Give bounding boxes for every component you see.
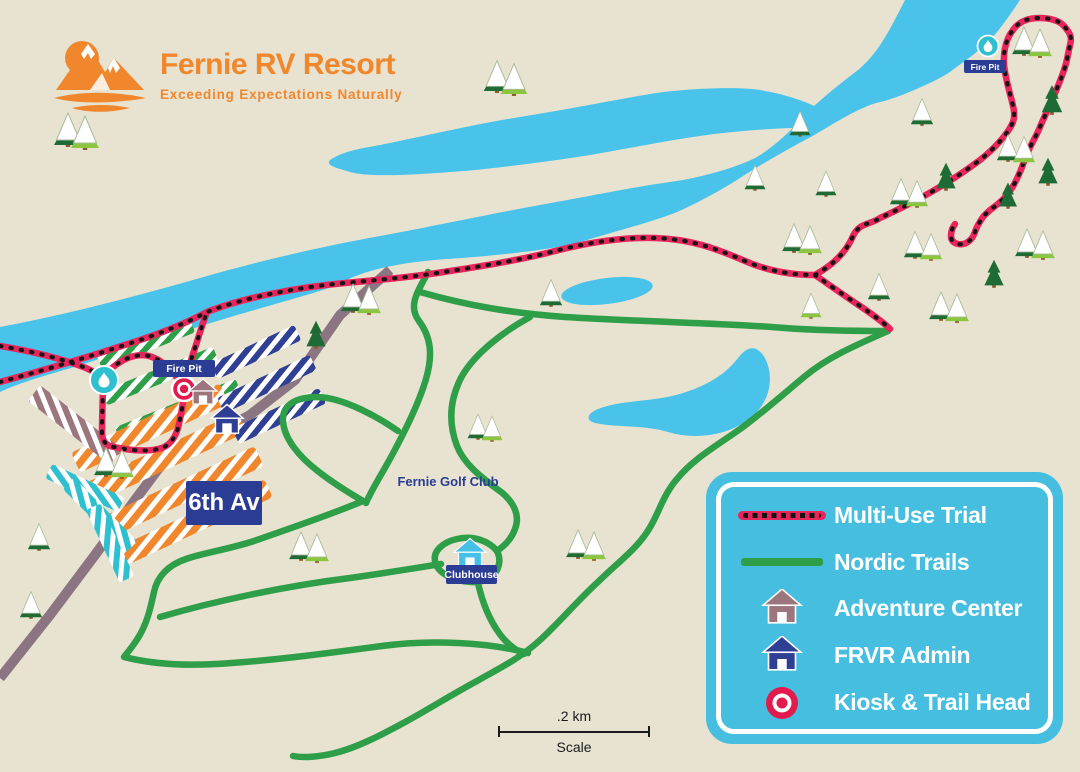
scale-tick-right: [648, 726, 650, 737]
legend-label: Adventure Center: [834, 595, 1022, 622]
tree-icon: [911, 99, 933, 126]
logo-tagline: Exceeding Expectations Naturally: [160, 87, 402, 102]
tree-icon: [801, 293, 822, 319]
frvr-admin-house-icon: [730, 636, 834, 676]
legend-row-nordic: Nordic Trails: [730, 539, 1045, 585]
tree-icon: [1038, 158, 1057, 186]
legend-label: Kiosk & Trail Head: [834, 689, 1031, 716]
fire-pit-icon: [978, 36, 999, 57]
scale-line: [498, 726, 650, 737]
pond-teardrop: [589, 348, 770, 436]
tree-icon: [1031, 231, 1055, 260]
tree-icon: [868, 274, 890, 301]
tree-icon: [920, 234, 942, 261]
scale-distance: .2 km: [498, 709, 650, 723]
logo-title: Fernie RV Resort: [160, 50, 402, 80]
adventure-center-house-icon: [730, 589, 834, 629]
legend-row-adventure-center: Adventure Center: [730, 586, 1045, 632]
trail-map: Fernie RV Resort Exceeding Expectations …: [0, 0, 1080, 772]
tree-icon: [984, 260, 1003, 288]
tree-icon: [540, 280, 562, 307]
tree-icon: [20, 592, 42, 619]
golf-club-label: Fernie Golf Club: [388, 474, 508, 489]
street-label-6th-av: 6th Av: [186, 481, 262, 525]
resort-logo: Fernie RV Resort Exceeding Expectations …: [50, 28, 402, 120]
tree-icon: [945, 294, 969, 323]
legend-row-multi-use: Multi-Use Trial: [730, 492, 1045, 538]
legend-label: Multi-Use Trial: [834, 502, 987, 529]
fire-pit-label-right: Fire Pit: [964, 60, 1006, 73]
tree-icon: [1028, 29, 1052, 58]
legend-label: FRVR Admin: [834, 642, 970, 669]
legend-row-kiosk: Kiosk & Trail Head: [730, 680, 1045, 726]
tree-icon: [582, 532, 606, 561]
kiosk-ring-icon: [730, 683, 834, 723]
tree-icon: [305, 534, 329, 563]
mountain-logo-icon: [50, 28, 150, 120]
nordic-trails-swatch: [730, 558, 834, 566]
fire-pit-label-left: Fire Pit: [153, 360, 215, 377]
clubhouse-label: Clubhouse: [446, 565, 497, 584]
multi-use-trail-swatch: [730, 511, 834, 520]
legend-panel: Multi-Use Trial Nordic Trails Adventure …: [706, 472, 1063, 744]
legend-row-frvr-admin: FRVR Admin: [730, 633, 1045, 679]
tree-icon: [816, 171, 837, 197]
scale-caption: Scale: [498, 739, 650, 755]
legend-label: Nordic Trails: [834, 549, 969, 576]
fire-pit-icon: [90, 366, 118, 394]
scale-bar: .2 km Scale: [498, 709, 650, 755]
tree-icon: [28, 524, 50, 551]
tree-icon: [798, 226, 822, 255]
pond-small: [560, 272, 654, 309]
